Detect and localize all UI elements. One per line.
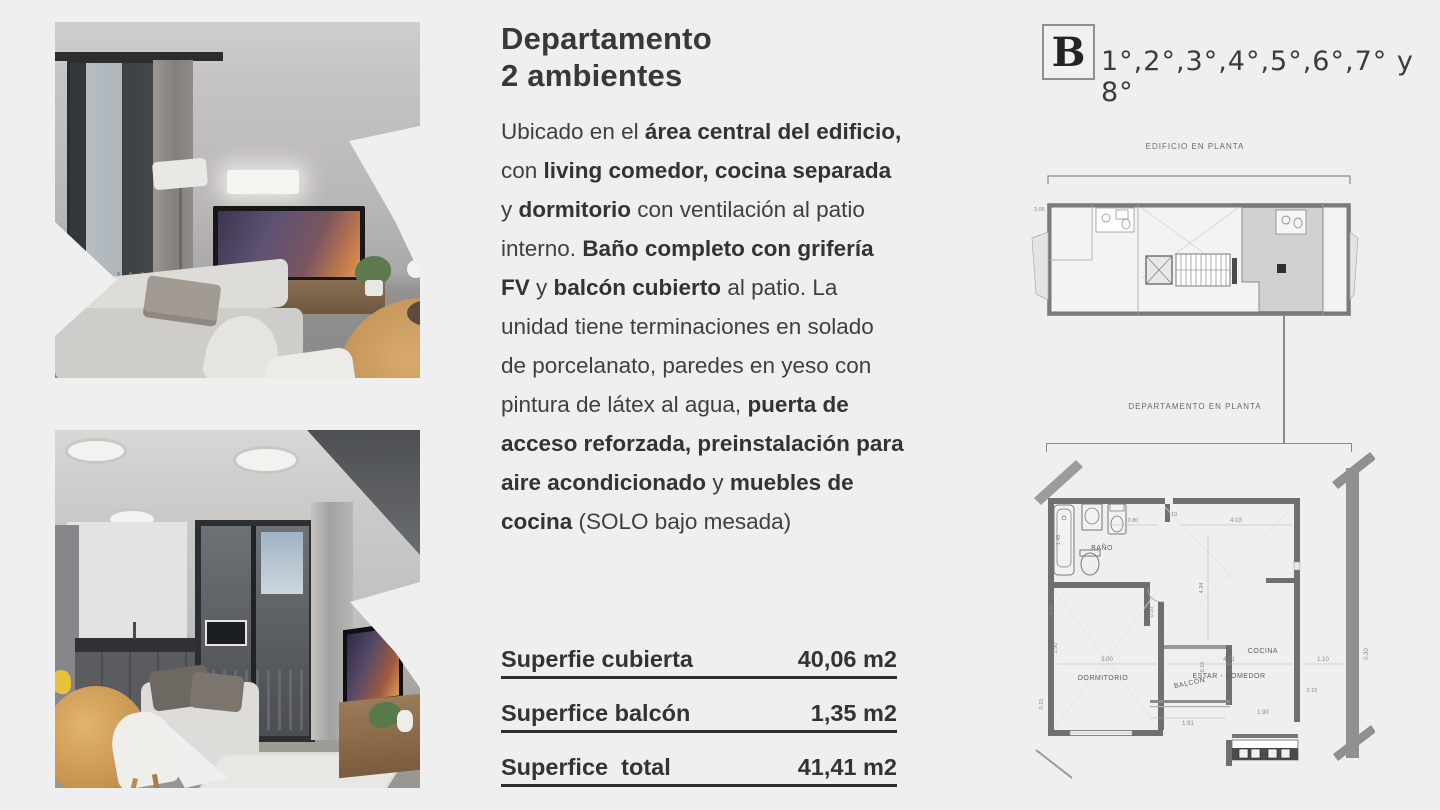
kitchen-counter bbox=[1226, 734, 1298, 766]
table-lamp bbox=[407, 260, 420, 278]
table-row: Superfie cubierta 40,06 m2 bbox=[501, 646, 897, 679]
svg-text:2.90: 2.90 bbox=[1053, 643, 1059, 654]
wall-light bbox=[227, 170, 299, 194]
building-floor-plan: 3.06 bbox=[1030, 160, 1360, 340]
building-plan-label: EDIFICIO EN PLANTA bbox=[1030, 142, 1360, 151]
room-label-bano: BAÑO bbox=[1091, 543, 1113, 552]
unit-connector-line bbox=[1283, 316, 1285, 443]
apartment-plan-label: DEPARTAMENTO EN PLANTA bbox=[1030, 402, 1360, 411]
dimension-bracket bbox=[1048, 176, 1350, 184]
vase bbox=[397, 710, 413, 732]
kitchen-wall bbox=[67, 522, 187, 642]
faint-diagonals bbox=[1054, 506, 1294, 728]
apartment-plan-bracket bbox=[1046, 443, 1352, 452]
svg-text:4.01: 4.01 bbox=[1223, 657, 1235, 663]
svg-text:1.90: 1.90 bbox=[1257, 710, 1269, 716]
surface-label: Superfice total bbox=[501, 754, 671, 781]
ceiling-light bbox=[65, 438, 127, 464]
table-row: Superfice total 41,41 m2 bbox=[501, 754, 897, 787]
render-living-photo bbox=[55, 22, 420, 378]
svg-text:3.00: 3.00 bbox=[1101, 657, 1113, 663]
svg-text:4.03: 4.03 bbox=[1230, 518, 1242, 524]
surface-label: Superfie cubierta bbox=[501, 646, 693, 673]
surface-table: Superfie cubierta 40,06 m2 Superfice bal… bbox=[501, 646, 897, 808]
apartment-floor-plan: 0.80 0.10 4.03 1.45 0.40 0.10 3.00 4.01 … bbox=[1030, 452, 1375, 782]
brochure-page: Departamento 2 ambientes Ubicado en el á… bbox=[0, 0, 1440, 810]
pillow bbox=[189, 671, 244, 712]
right-unit-bathroom bbox=[1276, 210, 1306, 234]
title-line-1: Departamento bbox=[501, 20, 712, 57]
svg-text:0.15: 0.15 bbox=[1039, 699, 1045, 710]
room-label-dormitorio: DORMITORIO bbox=[1078, 675, 1128, 682]
title-line-2: 2 ambientes bbox=[501, 57, 712, 94]
wall-opening bbox=[1294, 562, 1300, 570]
svg-text:1.45: 1.45 bbox=[1056, 535, 1062, 546]
description-paragraph: Ubicado en el área central del edificio,… bbox=[501, 112, 905, 541]
kitchen-counter bbox=[75, 638, 197, 652]
svg-text:0.30: 0.30 bbox=[1364, 648, 1370, 660]
tv-screen bbox=[347, 627, 399, 702]
dimension-lines bbox=[1058, 525, 1344, 718]
curtain-rod bbox=[55, 52, 223, 61]
unit-letter-badge: B bbox=[1042, 24, 1095, 80]
svg-text:0.10: 0.10 bbox=[1149, 607, 1155, 618]
sky-view bbox=[261, 532, 303, 594]
room-label-cocina: COCINA bbox=[1248, 648, 1278, 655]
balcony-wall bbox=[1164, 645, 1226, 649]
bathroom-fixtures bbox=[1054, 504, 1126, 575]
column-marker bbox=[1277, 264, 1286, 273]
svg-text:0.15: 0.15 bbox=[1307, 688, 1318, 694]
floor-lamp bbox=[152, 158, 208, 191]
surface-value: 1,35 m2 bbox=[811, 700, 897, 727]
room-labels: BAÑO DORMITORIO ESTAR - COMEDOR COCINA B… bbox=[1078, 543, 1278, 690]
unit-floors: 1°,2°,3°,4°,5°,6°,7° y 8° bbox=[1101, 46, 1440, 108]
balcony-edge bbox=[1150, 706, 1230, 707]
svg-text:0.40: 0.40 bbox=[1049, 605, 1055, 616]
page-title: Departamento 2 ambientes bbox=[501, 20, 712, 94]
elevator bbox=[1146, 256, 1172, 284]
balcony-railing bbox=[1150, 700, 1230, 703]
svg-text:4.34: 4.34 bbox=[1199, 583, 1205, 594]
fruit bbox=[55, 670, 71, 694]
render-kitchen-photo bbox=[55, 430, 420, 788]
left-unit-bathroom bbox=[1096, 208, 1134, 232]
svg-text:0.80: 0.80 bbox=[1128, 518, 1139, 524]
faucet bbox=[133, 622, 136, 639]
svg-text:0.10: 0.10 bbox=[1167, 512, 1178, 518]
surface-value: 40,06 m2 bbox=[798, 646, 897, 673]
plant-pot bbox=[365, 280, 383, 296]
room-label-balcon: BALCÓN bbox=[1173, 675, 1206, 690]
svg-text:1.91: 1.91 bbox=[1182, 721, 1194, 727]
surface-label: Superfice balcón bbox=[501, 700, 690, 727]
ceiling-light bbox=[233, 446, 299, 474]
svg-text:1.10: 1.10 bbox=[1317, 657, 1329, 663]
stairs bbox=[1176, 254, 1237, 286]
surface-value: 41,41 m2 bbox=[798, 754, 897, 781]
small-window bbox=[205, 620, 247, 646]
dimension-labels: 0.80 0.10 4.03 1.45 0.40 0.10 3.00 4.01 … bbox=[1039, 512, 1370, 727]
table-row: Superfice balcón 1,35 m2 bbox=[501, 700, 897, 733]
building-dim: 3.06 bbox=[1034, 207, 1045, 213]
svg-text:0.15: 0.15 bbox=[1200, 662, 1206, 673]
